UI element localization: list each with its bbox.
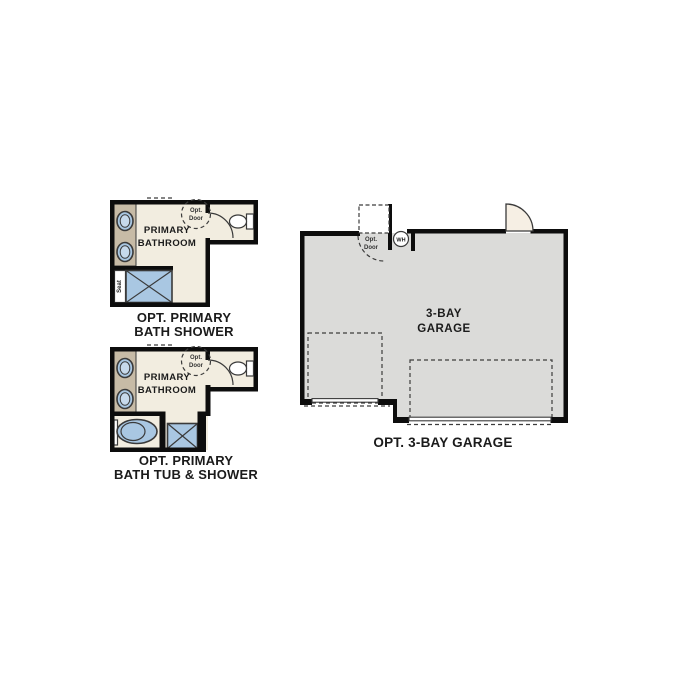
opt-door-label: Door	[189, 216, 204, 222]
opt-door-label: Door	[189, 363, 204, 369]
opt-door-label: Opt.	[365, 237, 377, 243]
wall	[110, 412, 163, 417]
room-label: BATHROOM	[138, 385, 196, 396]
sink-basin	[120, 246, 130, 259]
plan-bath-shower: Seat Opt. Door PRIMARY BATHROOM OPT. PRI…	[110, 198, 258, 339]
sink-basin	[120, 362, 130, 375]
toilet-bowl	[230, 215, 247, 228]
toilet-bowl	[230, 362, 247, 375]
sink-basin	[120, 215, 130, 228]
floorplan-page: Seat Opt. Door PRIMARY BATHROOM OPT. PRI…	[0, 0, 687, 687]
room-label: BATHROOM	[138, 238, 196, 249]
sink-basin	[120, 393, 130, 406]
water-heater-label: WH	[396, 237, 405, 243]
seat-label: Seat	[117, 280, 123, 293]
room-label: PRIMARY	[144, 225, 191, 236]
plan-caption: OPT. PRIMARY	[139, 453, 234, 468]
plan-caption: BATH TUB & SHOWER	[114, 467, 258, 482]
plan-caption: OPT. 3-BAY GARAGE	[373, 435, 512, 450]
floorplan-canvas: Seat Opt. Door PRIMARY BATHROOM OPT. PRI…	[0, 0, 687, 687]
room-label: PRIMARY	[144, 372, 191, 383]
opt-door-opening	[359, 205, 389, 233]
toilet-tank	[247, 361, 254, 376]
plan-caption: OPT. PRIMARY	[137, 310, 232, 325]
garage-door-double	[409, 417, 551, 421]
room-label: GARAGE	[417, 323, 470, 335]
entry-door-swing	[506, 204, 533, 231]
opt-door-label: Opt.	[190, 355, 202, 361]
opt-door-label: Opt.	[190, 208, 202, 214]
plan-garage: Opt. Door WH 3-BAY GARAGE OPT. 3-BAY GAR…	[300, 204, 568, 450]
room-label: 3-BAY	[426, 308, 462, 320]
toilet-tank	[247, 214, 254, 229]
plan-caption: BATH SHOWER	[134, 324, 234, 339]
opt-door-label: Door	[364, 245, 379, 251]
wall	[160, 412, 166, 453]
garage-door-single	[312, 399, 378, 403]
plan-bath-tub-shower: Opt. Door PRIMARY BATHROOM OPT. PRIMARY …	[110, 345, 258, 482]
